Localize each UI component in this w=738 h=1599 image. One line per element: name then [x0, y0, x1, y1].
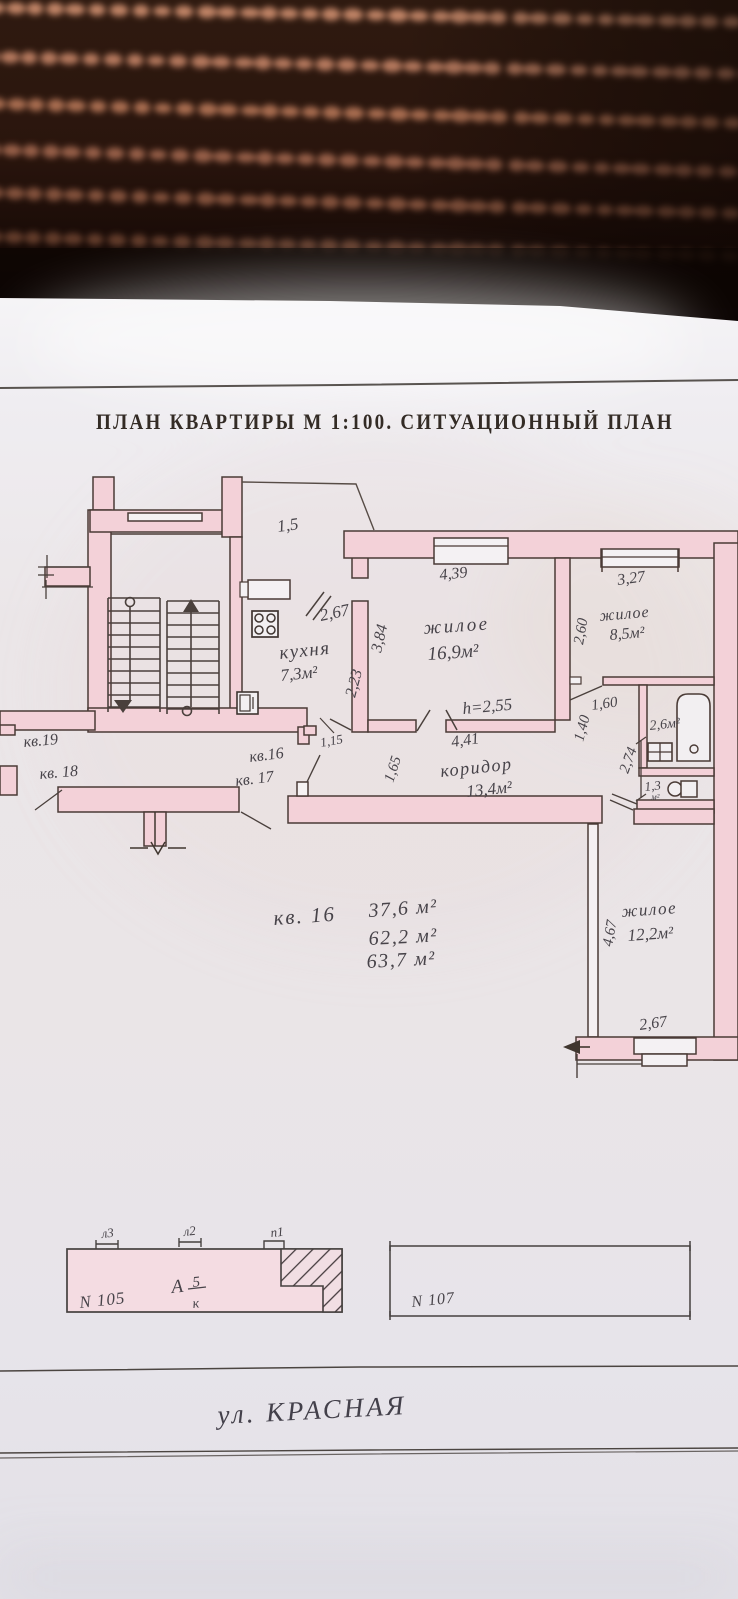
svg-text:кв. 18: кв. 18: [39, 763, 79, 783]
svg-text:16,9м²: 16,9м²: [427, 640, 480, 665]
svg-text:л2: л2: [182, 1223, 197, 1239]
svg-text:8,5м²: 8,5м²: [609, 624, 647, 644]
svg-text:7,3м²: 7,3м²: [279, 662, 319, 685]
svg-text:62,2 м²: 62,2 м²: [368, 924, 438, 950]
svg-text:63,7 м²: 63,7 м²: [366, 947, 436, 973]
svg-text:12,2м²: 12,2м²: [627, 923, 675, 945]
svg-text:п1: п1: [270, 1224, 284, 1240]
svg-text:кв. 16: кв. 16: [273, 902, 337, 930]
svg-text:жилое: жилое: [621, 898, 678, 921]
svg-text:кв.19: кв.19: [23, 731, 59, 751]
svg-text:4,39: 4,39: [439, 564, 469, 584]
svg-text:л3: л3: [100, 1225, 115, 1241]
svg-text:ПЛАН КВАРТИРЫ М 1:100. СИТУАЦ: ПЛАН КВАРТИРЫ М 1:100. СИТУАЦИОННЫЙ ПЛАН: [96, 409, 674, 434]
svg-text:м²: м²: [650, 792, 660, 802]
svg-text:1,5: 1,5: [276, 514, 300, 536]
